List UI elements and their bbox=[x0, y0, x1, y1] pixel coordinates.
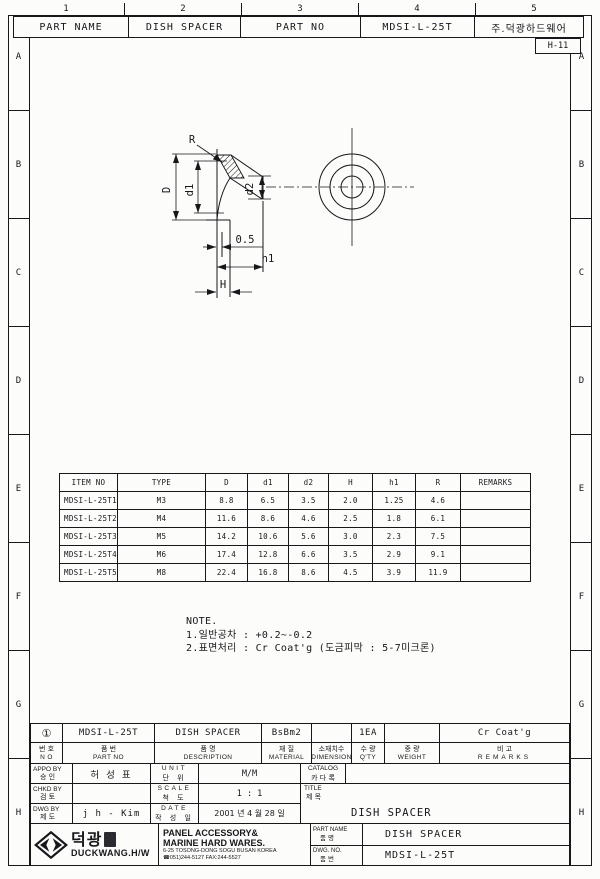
table-cell: 8.8 bbox=[206, 492, 248, 510]
frame-label: E bbox=[571, 434, 592, 542]
table-row: MDSI-L-25T5M822.416.88.64.53.911.9 bbox=[60, 564, 531, 582]
title-header-row: PART NAME DISH SPACER PART NO MDSI-L-25T… bbox=[13, 16, 584, 38]
item-remarks: Cr Coat'g bbox=[439, 723, 570, 743]
dwg-by-value: j h - Kim bbox=[72, 803, 151, 824]
col-header-dimension: 소재치수 DIMENSION bbox=[311, 742, 352, 764]
dim-label-h1: h1 bbox=[262, 253, 275, 265]
table-cell: 2.0 bbox=[329, 492, 373, 510]
table-cell: MDSI-L-25T5 bbox=[60, 564, 118, 582]
item-description: DISH SPACER bbox=[154, 723, 262, 743]
unit-en: UNIT bbox=[162, 765, 187, 773]
table-row: MDSI-L-25T1M38.86.53.52.01.254.6 bbox=[60, 492, 531, 510]
top-ruler: 12345 bbox=[8, 3, 592, 16]
frame-label: 1 bbox=[8, 3, 124, 15]
catalog-value bbox=[345, 763, 570, 784]
dim-label-thickness: 0.5 bbox=[236, 234, 255, 246]
frame-label: 5 bbox=[475, 3, 592, 15]
col-header-part-no: 품 번 PART NO bbox=[62, 742, 155, 764]
footer-dwg-no-kr: 품 번 bbox=[313, 855, 360, 863]
chkd-by-label: CHKD BY 검 토 bbox=[30, 783, 73, 804]
frame-label: D bbox=[8, 326, 29, 434]
col-header-no: 번 호 N O bbox=[30, 742, 63, 764]
note-line-1: 1.일반공차 : +0.2~-0.2 bbox=[186, 629, 436, 643]
table-cell: 3.9 bbox=[373, 564, 416, 582]
col-header-material-en: MATERIAL bbox=[269, 754, 304, 761]
scale-kr: 척 도 bbox=[162, 794, 186, 802]
table-header-cell: D bbox=[206, 474, 248, 492]
company-line-1: PANEL ACCESSORY& bbox=[163, 828, 258, 838]
table-cell: 2.5 bbox=[329, 510, 373, 528]
item-dimension bbox=[311, 723, 352, 743]
table-cell: 8.6 bbox=[289, 564, 329, 582]
company-logo-block: 덕광 DUCKWANG.H/W bbox=[30, 823, 159, 866]
catalog-en: CATALOG bbox=[308, 765, 338, 773]
date-en: DATE bbox=[161, 805, 188, 813]
dim-label-r: R bbox=[189, 134, 196, 146]
table-cell: 14.2 bbox=[206, 528, 248, 546]
table-cell: 16.8 bbox=[248, 564, 289, 582]
company-tel: ☎051)244-5127 FAX:244-5527 bbox=[163, 855, 241, 862]
frame-label: C bbox=[571, 218, 592, 326]
frame-label: B bbox=[571, 110, 592, 218]
table-cell bbox=[461, 510, 531, 528]
right-ruler: ABCDEFGH bbox=[570, 3, 592, 866]
table-cell: 8.6 bbox=[248, 510, 289, 528]
frame-label: 4 bbox=[358, 3, 475, 15]
col-header-material-kr: 재 질 bbox=[279, 745, 294, 753]
frame-label: H bbox=[8, 758, 29, 866]
table-cell: 12.8 bbox=[248, 546, 289, 564]
table-header-cell: d2 bbox=[289, 474, 329, 492]
footer-dwg-no-value: MDSI-L-25T bbox=[362, 845, 570, 866]
part-name-label: PART NAME bbox=[14, 17, 128, 37]
note-block: NOTE. 1.일반공차 : +0.2~-0.2 2.표면처리 : Cr Coa… bbox=[186, 615, 436, 656]
unit-label: UNIT 단 위 bbox=[150, 763, 199, 784]
date-value: 2001 년 4 월 28 일 bbox=[198, 803, 301, 824]
col-header-weight-kr: 중 량 bbox=[404, 745, 419, 753]
col-header-part-no-en: PART NO bbox=[93, 754, 124, 761]
table-cell: MDSI-L-25T3 bbox=[60, 528, 118, 546]
spec-table: ITEM NOTYPEDd1d2Hh1RREMARKS MDSI-L-25T1M… bbox=[59, 473, 531, 582]
col-header-weight-en: WEIGHT bbox=[398, 754, 426, 761]
table-cell: MDSI-L-25T1 bbox=[60, 492, 118, 510]
frame-label: 3 bbox=[241, 3, 358, 15]
table-cell: 9.1 bbox=[416, 546, 461, 564]
title-value: DISH SPACER bbox=[351, 807, 432, 819]
table-cell: M3 bbox=[118, 492, 206, 510]
chkd-by-kr: 검 토 bbox=[33, 793, 70, 801]
col-header-description-kr: 품 명 bbox=[200, 745, 215, 753]
col-header-description: 품 명 DESCRIPTION bbox=[154, 742, 262, 764]
frame-label: F bbox=[571, 542, 592, 650]
title-block: ① MDSI-L-25T DISH SPACER BsBm2 1EA Cr Co… bbox=[30, 723, 570, 866]
part-name-value: DISH SPACER bbox=[128, 17, 240, 37]
footer-part-name-label: PART NAME 품 명 bbox=[310, 823, 363, 846]
table-cell: 22.4 bbox=[206, 564, 248, 582]
title-kr: 제 목 bbox=[304, 793, 322, 801]
table-header-cell: R bbox=[416, 474, 461, 492]
col-header-weight: 중 량 WEIGHT bbox=[384, 742, 440, 764]
left-ruler: ABCDEFGH bbox=[8, 3, 30, 866]
spec-table-body: MDSI-L-25T1M38.86.53.52.01.254.6MDSI-L-2… bbox=[60, 492, 531, 582]
table-cell: 7.5 bbox=[416, 528, 461, 546]
front-view bbox=[266, 128, 414, 246]
drawing-sheet: 12345 ABCDEFGH ABCDEFGH PART NAME DISH S… bbox=[0, 0, 600, 879]
table-cell: 4.6 bbox=[289, 510, 329, 528]
company-line-2: MARINE HARD WARES. bbox=[163, 838, 265, 848]
hatched-section bbox=[217, 155, 244, 178]
table-header-cell: H bbox=[329, 474, 373, 492]
scale-en: SCALE bbox=[158, 785, 192, 793]
table-cell bbox=[461, 492, 531, 510]
appo-by-value: 허 성 표 bbox=[72, 763, 151, 784]
table-row: MDSI-L-25T2M411.68.64.62.51.86.1 bbox=[60, 510, 531, 528]
item-no-circle: ① bbox=[30, 723, 63, 743]
dim-label-h: H bbox=[220, 279, 226, 291]
company-logo-kr: 덕광 bbox=[71, 831, 102, 848]
table-cell: 4.5 bbox=[329, 564, 373, 582]
company-logo-en: DUCKWANG.H/W bbox=[71, 848, 150, 858]
date-kr: 작 성 일 bbox=[155, 814, 194, 822]
col-header-qty-kr: 수 량 bbox=[360, 745, 375, 753]
table-cell: 1.8 bbox=[373, 510, 416, 528]
table-header-cell: ITEM NO bbox=[60, 474, 118, 492]
frame-label: 2 bbox=[124, 3, 241, 15]
dwg-by-en: DWG BY bbox=[33, 806, 70, 814]
table-cell: 2.9 bbox=[373, 546, 416, 564]
table-cell bbox=[461, 528, 531, 546]
frame-label: H bbox=[571, 758, 592, 866]
table-cell bbox=[461, 564, 531, 582]
col-header-description-en: DESCRIPTION bbox=[184, 754, 233, 761]
dim-label-d1: d1 bbox=[184, 184, 196, 197]
table-cell: MDSI-L-25T4 bbox=[60, 546, 118, 564]
table-cell: 11.6 bbox=[206, 510, 248, 528]
frame-label: G bbox=[8, 650, 29, 758]
table-cell: 5.6 bbox=[289, 528, 329, 546]
table-cell: 6.6 bbox=[289, 546, 329, 564]
scale-label: SCALE 척 도 bbox=[150, 783, 199, 804]
side-view-section bbox=[206, 149, 263, 298]
table-header-row: ITEM NOTYPEDd1d2Hh1RREMARKS bbox=[60, 474, 531, 492]
company-name: 주.덕광하드웨어 bbox=[474, 17, 583, 37]
table-cell: 3.0 bbox=[329, 528, 373, 546]
frame-label: F bbox=[8, 542, 29, 650]
frame-label: D bbox=[571, 326, 592, 434]
col-header-remarks-kr: 비 고 bbox=[497, 745, 512, 753]
table-cell: M5 bbox=[118, 528, 206, 546]
table-header-cell: TYPE bbox=[118, 474, 206, 492]
logo-stamp-icon bbox=[104, 832, 116, 847]
company-logo-icon bbox=[34, 830, 68, 860]
table-cell: M4 bbox=[118, 510, 206, 528]
item-part-no: MDSI-L-25T bbox=[62, 723, 155, 743]
chkd-by-en: CHKD BY bbox=[33, 786, 70, 794]
table-row: MDSI-L-25T3M514.210.65.63.02.37.5 bbox=[60, 528, 531, 546]
scale-value: 1 : 1 bbox=[198, 783, 301, 804]
item-qty: 1EA bbox=[351, 723, 385, 743]
table-header-cell: REMARKS bbox=[461, 474, 531, 492]
table-cell: 11.9 bbox=[416, 564, 461, 582]
item-weight bbox=[384, 723, 440, 743]
item-material: BsBm2 bbox=[261, 723, 312, 743]
table-cell: M8 bbox=[118, 564, 206, 582]
table-cell: 2.3 bbox=[373, 528, 416, 546]
table-cell: 1.25 bbox=[373, 492, 416, 510]
sheet-code: H-11 bbox=[535, 38, 581, 54]
col-header-material: 재 질 MATERIAL bbox=[261, 742, 312, 764]
dwg-by-kr: 제 도 bbox=[33, 813, 70, 821]
appo-by-label: APPO BY 승 인 bbox=[30, 763, 73, 784]
table-cell: MDSI-L-25T2 bbox=[60, 510, 118, 528]
note-line-2: 2.표면처리 : Cr Coat'g (도금피막 : 5-7미크론) bbox=[186, 642, 436, 656]
col-header-remarks: 비 고 REMARKS bbox=[439, 742, 570, 764]
unit-kr: 단 위 bbox=[162, 774, 186, 782]
catalog-kr: 카 다 록 bbox=[311, 774, 335, 782]
frame-label: C bbox=[8, 218, 29, 326]
title-en: TITLE bbox=[304, 785, 322, 793]
col-header-part-no-kr: 품 번 bbox=[101, 745, 116, 753]
table-cell: 4.6 bbox=[416, 492, 461, 510]
col-header-remarks-en: REMARKS bbox=[478, 754, 531, 761]
table-cell: 17.4 bbox=[206, 546, 248, 564]
table-cell: 3.5 bbox=[289, 492, 329, 510]
col-header-qty-en: Q'TY bbox=[360, 754, 376, 761]
col-header-no-en: N O bbox=[40, 754, 53, 761]
dimension-lines bbox=[172, 145, 271, 292]
table-cell: 10.6 bbox=[248, 528, 289, 546]
company-info-block: PANEL ACCESSORY& MARINE HARD WARES. 6-25… bbox=[158, 823, 311, 866]
chkd-by-value bbox=[72, 783, 151, 804]
table-header-cell: h1 bbox=[373, 474, 416, 492]
footer-part-name-kr: 품 명 bbox=[313, 834, 360, 842]
col-header-dimension-en: DIMENSION bbox=[311, 754, 351, 761]
frame-label: B bbox=[8, 110, 29, 218]
table-header-cell: d1 bbox=[248, 474, 289, 492]
frame-label: G bbox=[571, 650, 592, 758]
table-cell bbox=[461, 546, 531, 564]
dim-label-d: D bbox=[161, 187, 173, 193]
frame-label: E bbox=[8, 434, 29, 542]
part-no-value: MDSI-L-25T bbox=[360, 17, 474, 37]
part-no-label: PART NO bbox=[240, 17, 360, 37]
footer-dwg-no-label: DWG. NO. 품 번 bbox=[310, 845, 363, 866]
footer-part-name-value: DISH SPACER bbox=[362, 823, 570, 846]
table-cell: 3.5 bbox=[329, 546, 373, 564]
table-cell: M6 bbox=[118, 546, 206, 564]
appo-by-kr: 승 인 bbox=[33, 773, 70, 781]
catalog-label: CATALOG 카 다 록 bbox=[300, 763, 346, 784]
dim-label-d2: d2 bbox=[244, 183, 256, 196]
dwg-by-label: DWG BY 제 도 bbox=[30, 803, 73, 824]
date-label: DATE 작 성 일 bbox=[150, 803, 199, 824]
table-row: MDSI-L-25T4M617.412.86.63.52.99.1 bbox=[60, 546, 531, 564]
unit-value: M/M bbox=[198, 763, 301, 784]
col-header-no-kr: 번 호 bbox=[39, 745, 54, 753]
table-cell: 6.5 bbox=[248, 492, 289, 510]
title-box: TITLE 제 목 DISH SPACER bbox=[300, 783, 570, 824]
col-header-dimension-kr: 소재치수 bbox=[319, 745, 345, 753]
note-title: NOTE. bbox=[186, 615, 436, 629]
table-cell: 6.1 bbox=[416, 510, 461, 528]
col-header-qty: 수 량 Q'TY bbox=[351, 742, 385, 764]
